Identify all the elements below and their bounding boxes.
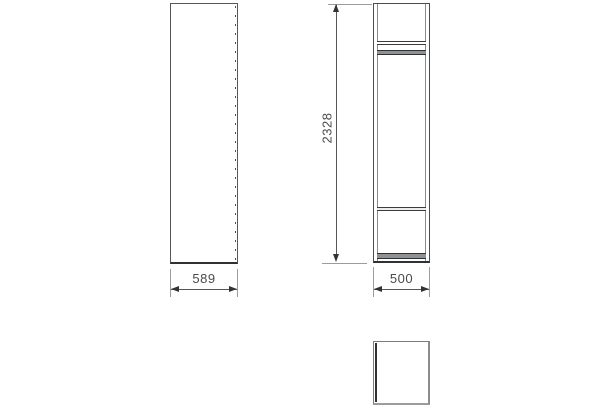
arrow-right-icon	[421, 286, 429, 292]
top-view-door-line	[375, 343, 377, 402]
middle-shelf-line	[377, 207, 426, 211]
arrow-left-icon	[374, 286, 382, 292]
hanging-rail-panel	[377, 50, 426, 55]
door-hinge-dashed-line	[235, 6, 236, 260]
arrow-up-icon	[333, 4, 339, 12]
top-view-outline	[373, 341, 430, 405]
arrow-left-icon	[171, 286, 179, 292]
arrow-down-icon	[333, 254, 339, 262]
bottom-panel	[377, 253, 426, 259]
height-dimension-line	[336, 5, 337, 258]
height-dimension-label: 2328	[320, 113, 335, 144]
height-extension-line-bottom	[322, 263, 367, 264]
top-shelf-line	[377, 41, 426, 45]
front-view-outline	[170, 3, 238, 264]
side-view-outline	[373, 3, 430, 263]
arrow-right-icon	[229, 286, 237, 292]
depth-dimension-label: 500	[373, 271, 430, 286]
width-dimension-line	[171, 289, 237, 290]
width-dimension-label: 589	[170, 271, 238, 286]
technical-drawing-sheet: 589 500 2328	[0, 0, 600, 410]
